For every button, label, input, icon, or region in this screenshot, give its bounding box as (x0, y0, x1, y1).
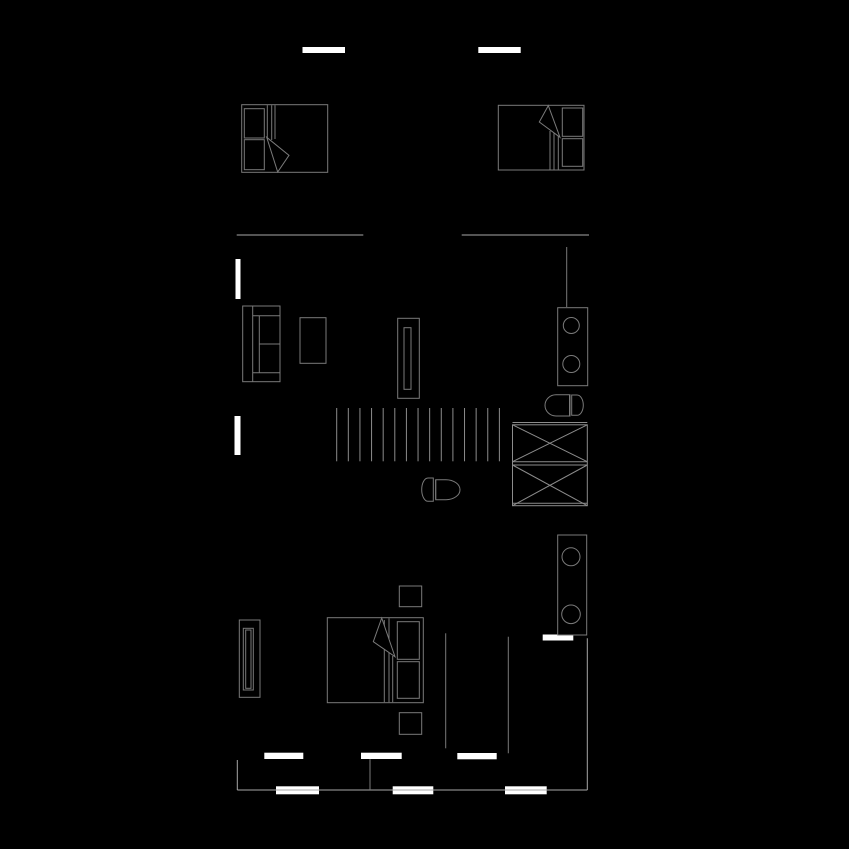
wall-segment-top-left (303, 47, 346, 53)
bed-1-pillow-2 (244, 140, 264, 170)
wardrobe-outline (239, 620, 260, 697)
bed-1-blanket-fold (267, 137, 289, 172)
wardrobe-door-inner (246, 630, 251, 688)
bed-1-pillow-1 (244, 109, 264, 138)
bed-3-frame (327, 618, 423, 703)
wall-segment-left-lower (235, 416, 241, 455)
wardrobe-door (243, 628, 253, 690)
vanity-lower-sink-1 (562, 548, 580, 566)
wall-segment-left-upper (236, 259, 241, 299)
wall-segment-mid-2 (361, 753, 402, 759)
vanity-upper-sink-2 (563, 356, 580, 373)
bed-2-pillow-2 (562, 139, 582, 167)
bed-3-pillow-2 (397, 662, 419, 699)
vanity-upper-counter (558, 308, 588, 386)
bed-3-pillow-1 (397, 622, 419, 660)
vanity-lower-sink-2 (562, 605, 581, 624)
wall-segment-mid-3 (457, 753, 496, 759)
vanity-upper-sink-1 (563, 318, 579, 334)
vanity-lower-counter (558, 535, 587, 635)
toilet-upper-bowl (545, 395, 570, 416)
floor-plan-canvas (0, 0, 849, 849)
wall-segment-top-right (478, 47, 520, 53)
floor-plan (0, 0, 849, 849)
toilet-upper-tank (572, 395, 584, 415)
nightstand-upper (399, 586, 421, 607)
tv-stand (398, 318, 420, 398)
tv-screen (404, 328, 411, 390)
toilet-mid-bowl (436, 480, 460, 500)
coffee-table (300, 318, 326, 364)
bed-2-pillow-1 (562, 108, 582, 136)
wall-segment-mid-1 (264, 753, 303, 759)
toilet-mid-tank (422, 478, 434, 501)
bed-2-frame (498, 105, 584, 170)
nightstand-lower (399, 713, 421, 735)
